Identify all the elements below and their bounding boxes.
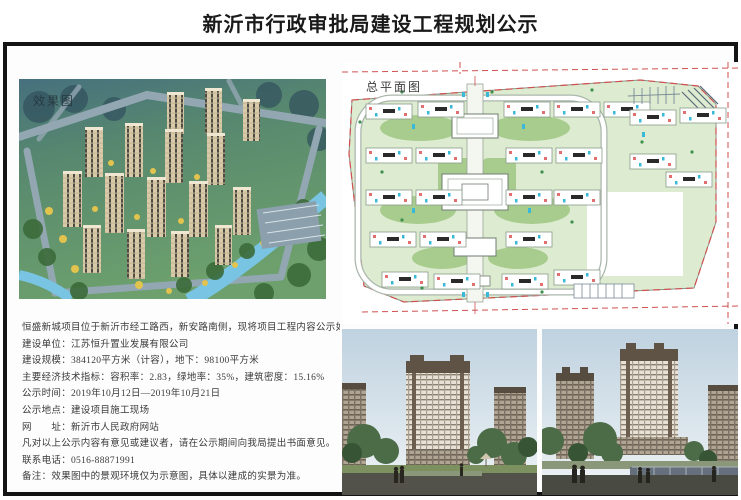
- notice-line-location: 公示地点：建设项目施工现场: [22, 403, 340, 420]
- planning-notice-page: { "page": { "title": "新沂市行政审批局建设工程规划公示" …: [0, 0, 741, 500]
- photo-2-main-tower: [612, 343, 688, 455]
- building-rendering-photo-1: [342, 329, 537, 495]
- document-border-frame: 效果图: [3, 42, 738, 496]
- site-plan-label: 总平面图: [366, 78, 422, 95]
- aerial-image-label: 效果图: [33, 92, 75, 109]
- photo-1-graphic: [342, 329, 537, 495]
- page-title: 新沂市行政审批局建设工程规划公示: [0, 8, 741, 37]
- aerial-rendering-image: 效果图: [19, 79, 326, 299]
- notice-line-intro: 恒盛新城项目位于新沂市经工路西，新安路南侧，现将项目工程内容公示如下：: [22, 320, 340, 337]
- aerial-rendering-graphic: [19, 79, 326, 299]
- notice-line-scale: 建设规模：384120平方米（计容），地下：98100平方米: [22, 353, 340, 370]
- notice-line-phone: 联系电话：0516-88871991: [22, 453, 340, 470]
- site-plan-image: 总平面图: [342, 62, 739, 324]
- notice-line-indicators: 主要经济技术指标：容积率：2.83，绿地率：35%，建筑密度：15.16%: [22, 370, 340, 387]
- notice-line-feedback: 凡对以上公示内容有意见或建议者，请在公示期间向我局提出书面意见。: [22, 436, 340, 453]
- notice-line-period: 公示时间：2019年10月12日—2019年10月21日: [22, 386, 340, 403]
- notice-line-builder: 建设单位：江苏恒升置业发展有限公司: [22, 337, 340, 354]
- site-plan-graphic: [342, 62, 739, 324]
- notice-text-block: 恒盛新城项目位于新沂市经工路西，新安路南侧，现将项目工程内容公示如下： 建设单位…: [22, 320, 340, 488]
- photo-2-graphic: [542, 329, 738, 495]
- notice-line-website: 网 址：新沂市人民政府网站: [22, 420, 340, 437]
- building-rendering-photo-2: [542, 329, 738, 495]
- notice-line-remark: 备注：效果图中的景观环境仅为示意图，具体以建成的实景为准。: [22, 469, 340, 486]
- photo-1-main-tower: [406, 355, 470, 465]
